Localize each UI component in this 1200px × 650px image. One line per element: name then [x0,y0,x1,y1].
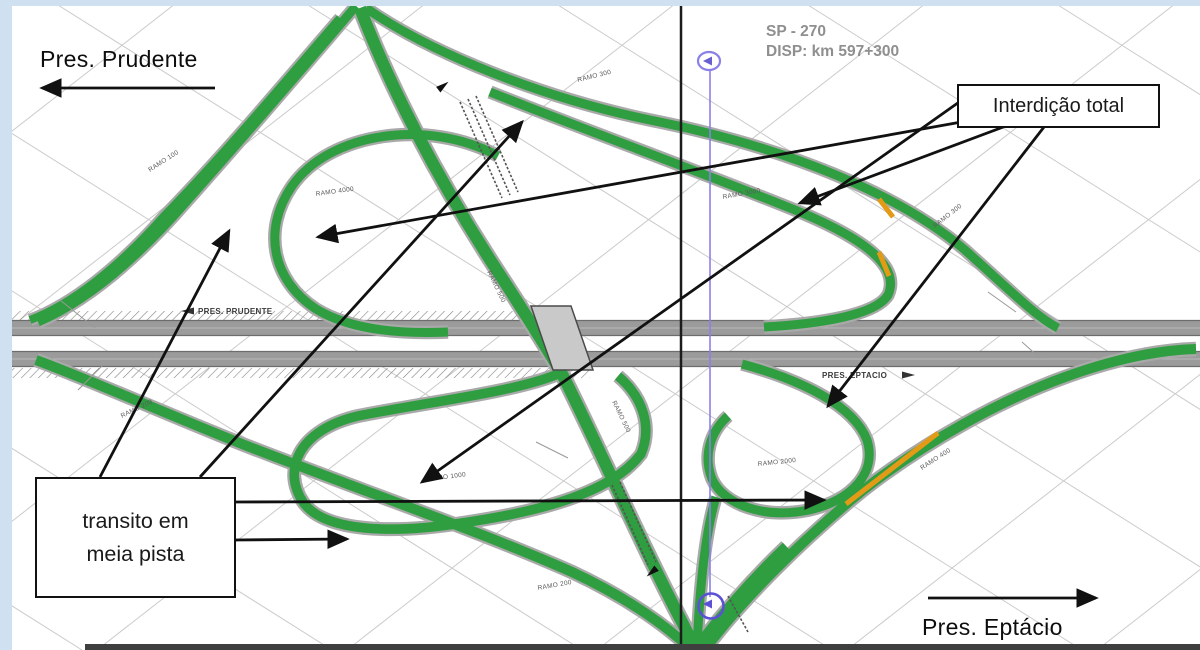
interchange-drawing: RAMO 100RAMO 300RAMO 4000RAMO 500RAMO 50… [0,0,1200,650]
highway-mainline [12,320,1200,367]
map-label: RAMO 500 [610,400,631,434]
ramp-400 [706,349,1196,648]
route-disp: DISP: km 597+300 [766,42,899,62]
half-lane-callout: transito em meia pista [35,477,236,598]
route-title-block: SP - 270 DISP: km 597+300 [766,22,899,62]
map-label: RAMO 300 [577,69,612,84]
half-lane-label: transito em meia pista [82,505,188,571]
leader-line [536,442,568,458]
frame-left-strip [0,0,12,650]
map-label: PRES. PRUDENTE [198,307,273,316]
map-label: RAMO 300 [932,203,964,230]
frame-bottom-bar [85,644,1200,650]
annotation-arrow [233,539,347,540]
map-label: RAMO 200 [537,579,572,592]
route-number: SP - 270 [766,22,899,42]
frame-top-strip [0,0,1200,6]
closure-hatch-upper [12,311,560,320]
dest-right-label: Pres. Eptácio [922,614,1063,641]
map-label: RAMO 4000 [315,186,354,198]
total-closure-callout: Interdição total [957,84,1160,128]
dest-left-label: Pres. Prudente [40,46,198,73]
direction-arrow-icon [902,372,915,379]
ramp-400-casing [706,349,1196,648]
total-closure-label: Interdição total [993,95,1124,118]
map-label: RAMO 100 [147,149,180,174]
